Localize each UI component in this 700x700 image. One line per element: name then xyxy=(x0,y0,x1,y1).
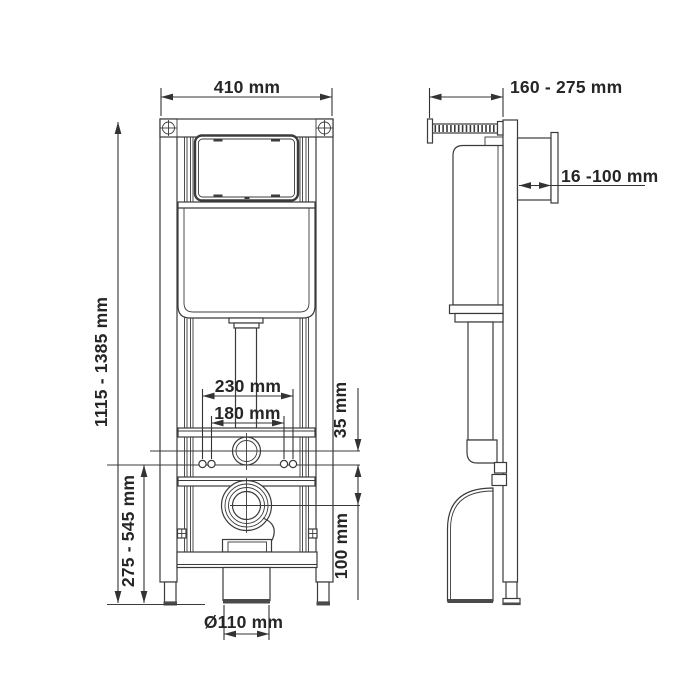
dim-outlet-offset: 100 mm xyxy=(331,465,358,600)
rail-clip-left xyxy=(178,529,187,538)
outlet-pedestal xyxy=(223,540,272,553)
dim-outlet-height-range: 275 - 545 mm xyxy=(118,465,144,603)
dim-inlet-offset: 35 mm xyxy=(330,382,358,451)
cistern-tank xyxy=(178,202,315,318)
side-adjustable-foot xyxy=(503,582,520,605)
side-waste-elbow xyxy=(448,488,494,603)
dim-outlet-offset-label: 100 mm xyxy=(331,513,351,579)
bottom-crossbar xyxy=(177,552,317,568)
dim-wall-finish-range-label: 16 -100 mm xyxy=(561,166,658,186)
wc-frame-technical-drawing: 410 mm 1115 - 1385 mm 230 mm 180 mm 35 m… xyxy=(0,0,700,700)
dim-depth-range-label: 160 - 275 mm xyxy=(510,77,622,97)
dim-frame-width: 410 mm xyxy=(161,77,332,116)
dim-outlet-height-range-label: 275 - 545 mm xyxy=(118,475,138,587)
dim-frame-height-label: 1115 - 1385 mm xyxy=(91,297,111,427)
side-cistern xyxy=(450,137,504,322)
side-frame-post xyxy=(503,120,518,582)
front-view xyxy=(107,119,360,606)
flush-button-housing xyxy=(518,133,559,204)
wall-anchor-rod xyxy=(428,119,504,143)
dim-frame-height: 1115 - 1385 mm xyxy=(91,122,118,603)
dim-frame-width-label: 410 mm xyxy=(214,77,280,97)
waste-pipe-stub xyxy=(223,568,270,604)
rail-clip-right xyxy=(309,529,318,538)
side-flush-pipe xyxy=(467,322,497,463)
flush-plate-access-panel xyxy=(195,136,298,201)
adjustable-foot-left xyxy=(164,582,178,606)
dim-depth-range: 160 - 275 mm xyxy=(430,77,623,118)
dim-waste-diameter: Ø110 mm xyxy=(204,605,283,640)
side-view xyxy=(428,119,559,605)
technical-drawing-page: 410 mm 1115 - 1385 mm 230 mm 180 mm 35 m… xyxy=(0,0,700,700)
dim-fixing-inner-label: 180 mm xyxy=(214,403,280,423)
adjustable-foot-right xyxy=(317,582,331,606)
side-fixing-brackets xyxy=(492,463,507,486)
dim-waste-diameter-label: Ø110 mm xyxy=(204,612,283,632)
dim-inlet-offset-label: 35 mm xyxy=(330,382,350,438)
dim-fixing-outer-label: 230 mm xyxy=(215,376,281,396)
